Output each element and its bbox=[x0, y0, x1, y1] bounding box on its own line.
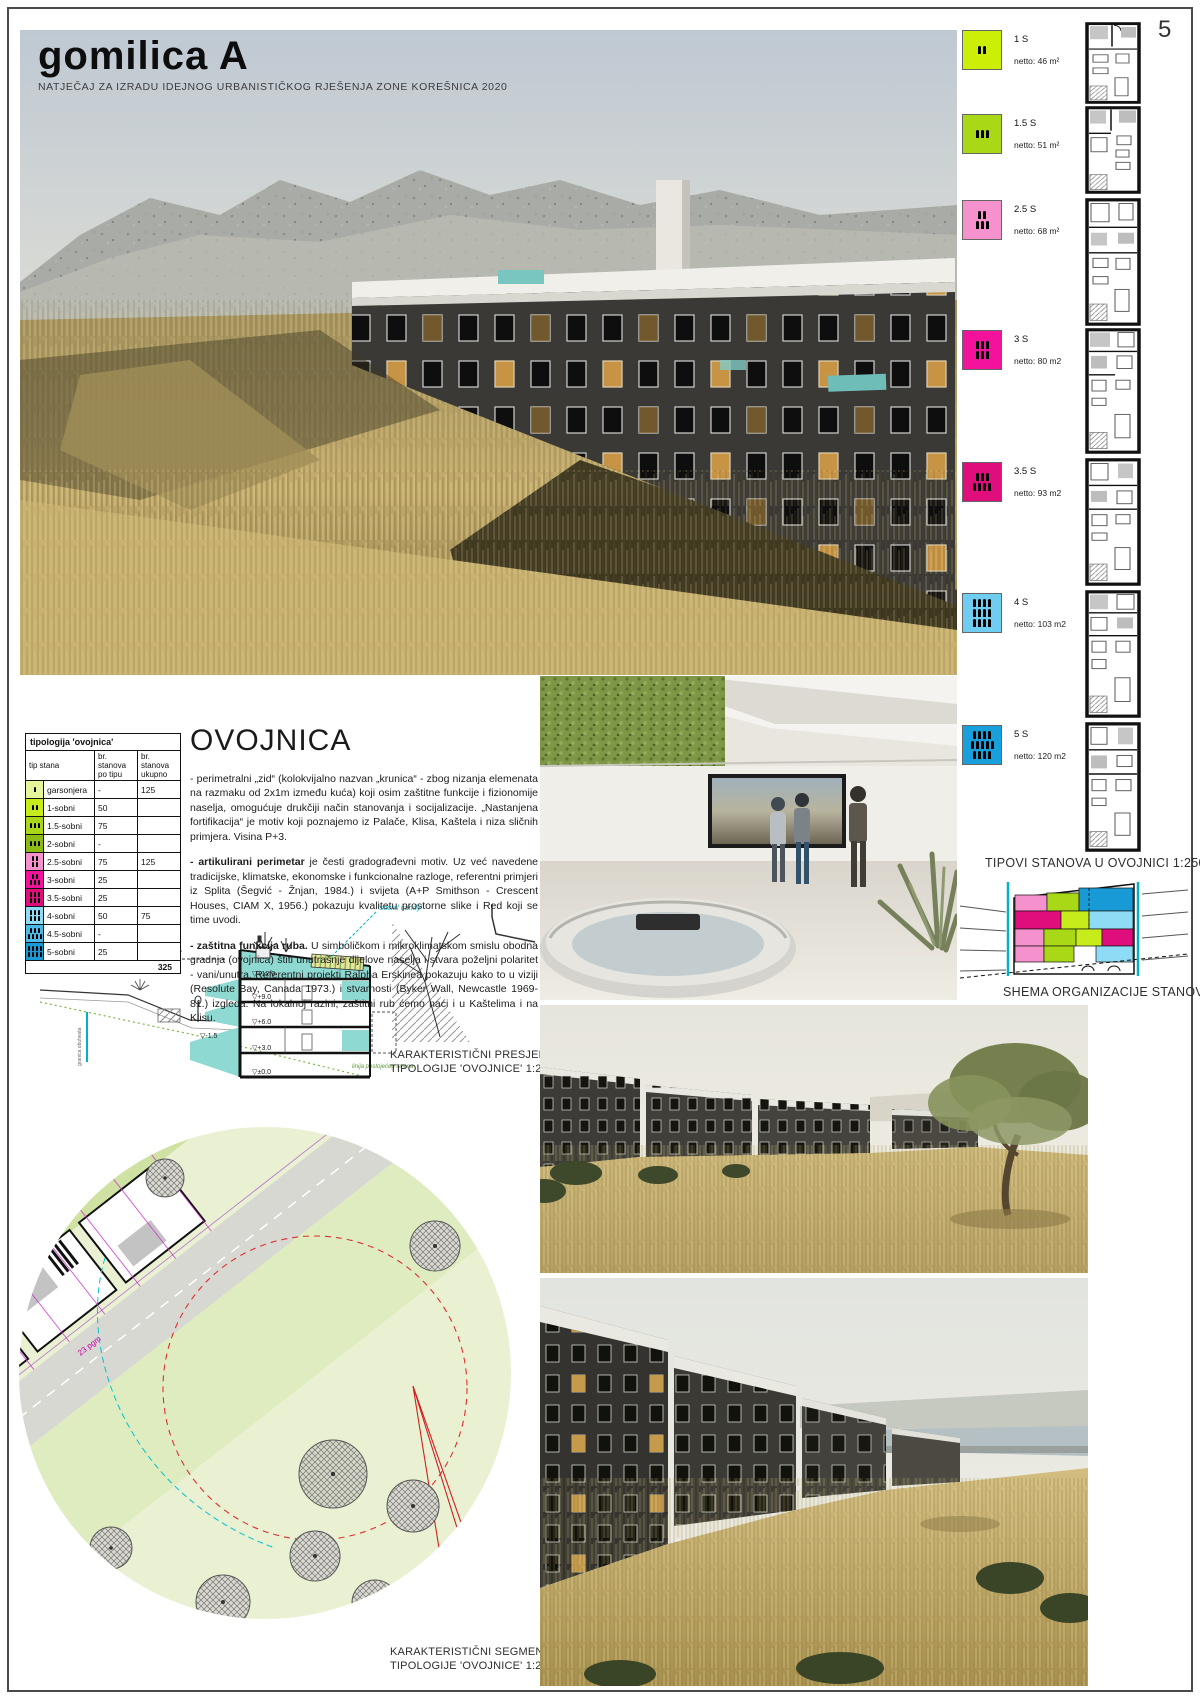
type-name: 2.5-sobni bbox=[44, 853, 95, 871]
table-row: garsonjera - 125 bbox=[26, 781, 181, 799]
persons-icon bbox=[976, 130, 989, 138]
type-name: 2-sobni bbox=[44, 835, 95, 853]
persons-icon bbox=[973, 731, 991, 739]
coastline-render-image bbox=[540, 1278, 1088, 1686]
type-color-chip bbox=[26, 907, 43, 924]
table-row: 1-sobni 50 bbox=[26, 799, 181, 817]
type-netto: netto: 93 m2 bbox=[1014, 488, 1061, 498]
type-color-chip bbox=[26, 817, 43, 834]
type-name: 3.5-sobni bbox=[44, 889, 95, 907]
level-label: ▽+3.0 bbox=[252, 1045, 271, 1052]
floor-plan-1-5s bbox=[1085, 106, 1141, 194]
article-heading: OVOJNICA bbox=[190, 724, 538, 758]
caption-shema-organizacije: SHEMA ORGANIZACIJE STANOVA bbox=[1003, 985, 1200, 999]
typology-table: tipologija 'ovojnica' tip stana br. stan… bbox=[25, 733, 181, 974]
floor-plan-3-5s bbox=[1085, 458, 1141, 586]
floor-plan-4s bbox=[1085, 590, 1141, 718]
type-color-chip bbox=[26, 799, 43, 816]
site-plan-segment: garaža 23 pgm 23 pgm bbox=[15, 1078, 515, 1670]
type-label: 5 S bbox=[1014, 729, 1028, 740]
type-color-chip bbox=[26, 781, 43, 798]
type-netto: netto: 103 m2 bbox=[1014, 619, 1066, 629]
type-swatch-4s bbox=[962, 593, 1002, 633]
level-label: ▽±0.0 bbox=[252, 1069, 271, 1076]
type-name: 1-sobni bbox=[44, 799, 95, 817]
floor-plan-1s bbox=[1085, 22, 1141, 104]
table-row: 1.5-sobni 75 bbox=[26, 817, 181, 835]
page-number: 5 bbox=[1158, 16, 1171, 44]
boundary-label: granica obuhvata bbox=[77, 1027, 83, 1066]
table-title: tipologija 'ovojnica' bbox=[26, 734, 181, 751]
type-label: 3 S bbox=[1014, 334, 1028, 345]
type-name: 4-sobni bbox=[44, 907, 95, 925]
col-header-tip-stana: tip stana bbox=[26, 751, 95, 781]
page-subtitle: NATJEČAJ ZA IZRADU IDEJNOG URBANISTIČKOG… bbox=[38, 81, 507, 93]
floor-plan-2-5s bbox=[1085, 198, 1141, 326]
type-swatch-5s bbox=[962, 725, 1002, 765]
caption-tipovi-stanova: TIPOVI STANOVA U OVOJNICI 1:250 bbox=[985, 856, 1200, 870]
persons-icon bbox=[976, 473, 989, 481]
type-label: 1.5 S bbox=[1014, 118, 1036, 129]
type-name: garsonjera bbox=[44, 781, 95, 799]
type-swatch-1s bbox=[962, 30, 1002, 70]
type-color-chip bbox=[26, 871, 43, 888]
type-swatch-3s bbox=[962, 330, 1002, 370]
table-row: 2-sobni - bbox=[26, 835, 181, 853]
type-label: 2.5 S bbox=[1014, 204, 1036, 215]
type-netto: netto: 51 m² bbox=[1014, 140, 1059, 150]
type-label: 4 S bbox=[1014, 597, 1028, 608]
type-name: 5-sobni bbox=[44, 943, 95, 961]
caption-presjek: KARAKTERISTIČNI PRESJEK TIPOLOGIJE 'OVOJ… bbox=[390, 1048, 554, 1077]
persons-icon bbox=[976, 341, 989, 349]
article-paragraph-3: - zaštitna funkcija ruba. U simboličkom … bbox=[190, 939, 538, 1026]
col-header-ukupno: br. stanova ukupno bbox=[138, 751, 181, 781]
type-netto: netto: 68 m² bbox=[1014, 226, 1059, 236]
type-netto: netto: 46 m² bbox=[1014, 56, 1059, 66]
table-total-row: 325 bbox=[26, 961, 181, 974]
type-name: 3-sobni bbox=[44, 871, 95, 889]
type-swatch-2-5s bbox=[962, 200, 1002, 240]
type-color-chip bbox=[26, 889, 43, 906]
type-label: 1 S bbox=[1014, 34, 1028, 45]
type-color-chip bbox=[26, 835, 43, 852]
type-netto: netto: 80 m2 bbox=[1014, 356, 1061, 366]
type-swatch-1-5s bbox=[962, 114, 1002, 154]
apartment-organization-schema bbox=[956, 876, 1192, 982]
type-name: 4.5-sobni bbox=[44, 925, 95, 943]
courtyard-render-image bbox=[540, 676, 957, 1000]
table-row: 5-sobni 25 bbox=[26, 943, 181, 961]
table-row: 2.5-sobni 75 125 bbox=[26, 853, 181, 871]
table-row: 3-sobni 25 bbox=[26, 871, 181, 889]
type-color-chip bbox=[26, 925, 43, 942]
article-paragraph-1: - perimetralni „zid“ (kolokvijalno nazva… bbox=[190, 772, 538, 844]
persons-icon bbox=[978, 211, 986, 219]
article-paragraph-2: - artikulirani perimetar je česti gradog… bbox=[190, 855, 538, 927]
col-header-po-tipu: br. stanova po tipu bbox=[95, 751, 138, 781]
caption-segment: KARAKTERISTIČNI SEGMENT TIPOLOGIJE 'OVOJ… bbox=[390, 1645, 554, 1674]
floor-plan-3s bbox=[1085, 328, 1141, 454]
hero-render-image bbox=[20, 30, 957, 675]
type-color-chip bbox=[26, 943, 43, 960]
persons-icon bbox=[973, 599, 991, 607]
page-title: gomilica A bbox=[38, 34, 507, 79]
type-swatch-3-5s bbox=[962, 462, 1002, 502]
article-ovojnica: OVOJNICA - perimetralni „zid“ (kolokvija… bbox=[190, 724, 538, 1037]
type-color-chip bbox=[26, 853, 43, 870]
table-row: 4-sobni 50 75 bbox=[26, 907, 181, 925]
table-row: 3.5-sobni 25 bbox=[26, 889, 181, 907]
persons-icon bbox=[978, 46, 986, 54]
table-row: 4.5-sobni - bbox=[26, 925, 181, 943]
type-netto: netto: 120 m2 bbox=[1014, 751, 1066, 761]
floor-plan-5s bbox=[1085, 722, 1141, 852]
table-grand-total: 325 bbox=[26, 961, 181, 974]
title-block: gomilica A NATJEČAJ ZA IZRADU IDEJNOG UR… bbox=[38, 34, 507, 93]
type-label: 3.5 S bbox=[1014, 466, 1036, 477]
hillside-render-image bbox=[540, 1005, 1088, 1273]
type-name: 1.5-sobni bbox=[44, 817, 95, 835]
